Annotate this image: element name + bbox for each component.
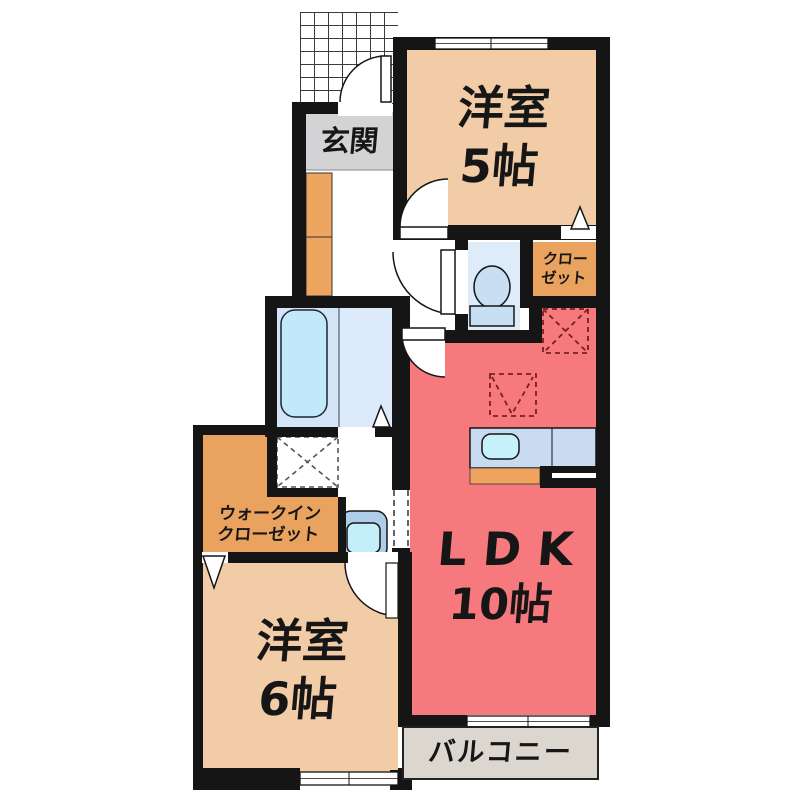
bathtub xyxy=(281,310,327,417)
closet-floor xyxy=(533,242,596,296)
shoe-cabinet xyxy=(306,173,332,296)
window-balcony xyxy=(467,716,590,727)
balcony-floor xyxy=(403,727,598,779)
kitchen-sink xyxy=(482,434,519,459)
washer-space xyxy=(277,437,338,487)
kitchen-cabinet xyxy=(470,468,540,484)
genkan-floor xyxy=(306,112,393,170)
floorplan-canvas: 洋室 5帖 玄関 クロー ゼット LDK 10帖 ウォークイン クローゼット 洋… xyxy=(0,0,800,800)
window-room6-bottom xyxy=(300,772,398,785)
sliding-door xyxy=(392,490,410,548)
floorplan-drawing xyxy=(0,0,800,800)
window-room5-top xyxy=(435,38,548,49)
toilet xyxy=(474,266,510,308)
